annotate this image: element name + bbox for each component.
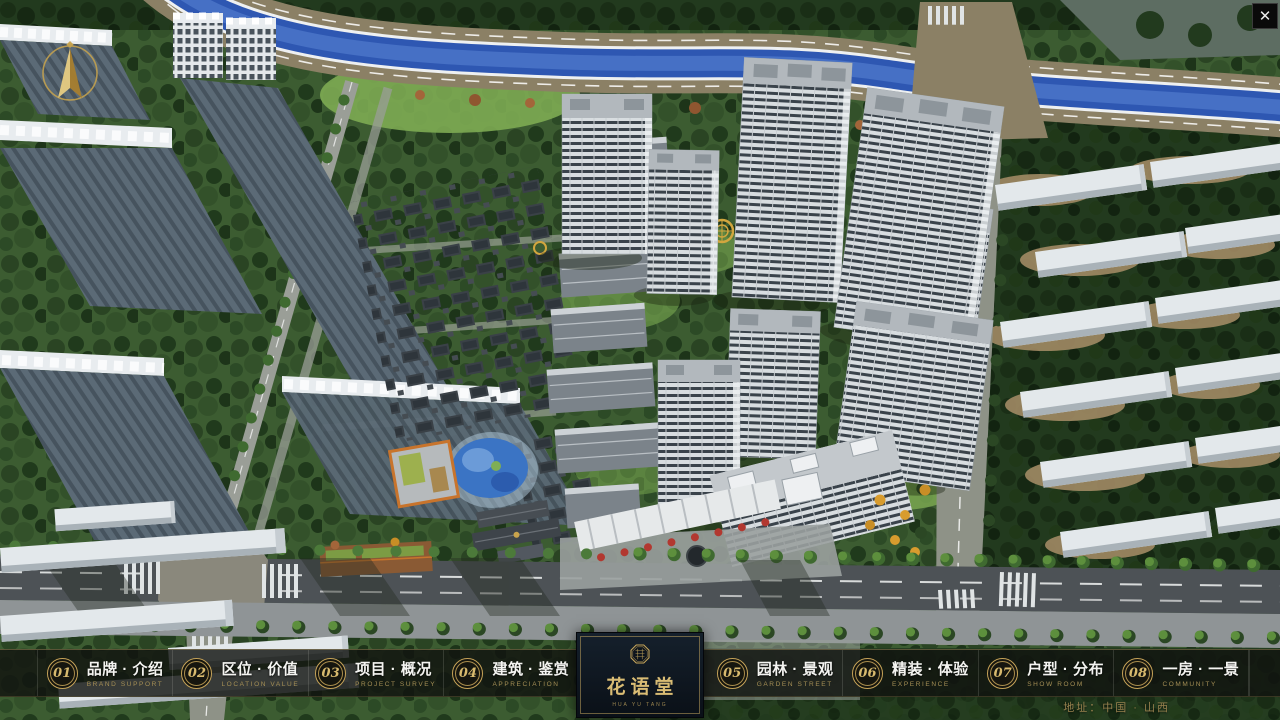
menu-item-views[interactable]: 08 一房 · 一景COMMUNITY [1114,650,1249,696]
number-badge-02: 02 [181,658,212,689]
item-number: 04 [459,667,477,680]
item-label-en: BRAND SUPPORT [87,681,164,688]
item-label-zh: 建筑 · 鉴赏 [492,658,569,679]
site-plan-render [0,0,1280,720]
menu-item-garden[interactable]: 05 园林 · 景观GARDEN STREET [708,650,843,696]
item-label-zh: 户型 · 分布 [1027,658,1104,679]
number-badge-01: 01 [47,658,78,689]
item-label-zh: 项目 · 概况 [355,658,432,679]
item-label-en: EXPERIENCE [892,681,950,688]
item-label-zh: 品牌 · 介绍 [87,658,164,679]
compass-north-icon [38,40,102,104]
menu-item-location[interactable]: 02 区位 · 价值LOCATION VALUE [173,650,308,696]
logo-caption: HUA YU TANG [612,702,667,708]
sales-presentation-screen: ✕ 01 品牌 · 介绍BRAND SUPPORT 02 区位 · 价值LOCA… [0,0,1280,720]
number-badge-06: 06 [852,658,883,689]
item-number: 02 [188,667,206,680]
number-badge-05: 05 [717,658,748,689]
number-badge-07: 07 [987,658,1018,689]
item-label-en: COMMUNITY [1162,681,1216,688]
address-text: 地址：中国 · 山西 [1063,699,1170,715]
item-label-en: PROJECT SURVEY [355,681,436,688]
item-number: 05 [723,667,741,680]
item-number: 01 [53,667,71,680]
item-number: 06 [858,667,876,680]
number-badge-03: 03 [315,658,346,689]
item-number: 03 [322,667,340,680]
number-badge-08: 08 [1122,658,1153,689]
item-number: 07 [994,667,1012,680]
item-number: 08 [1129,667,1147,680]
logo-panel[interactable]: 花语堂 HUA YU TANG [576,632,704,718]
item-label-en: APPRECIATION [492,681,559,688]
item-label-zh: 区位 · 价值 [221,658,298,679]
item-label-en: LOCATION VALUE [221,681,299,688]
number-badge-04: 04 [452,658,483,689]
close-icon: ✕ [1259,7,1272,25]
logo-title: 花语堂 [601,672,678,699]
close-button[interactable]: ✕ [1252,3,1278,29]
orange-building [390,441,459,507]
nav-right-spacer [1249,650,1280,696]
item-label-zh: 园林 · 景观 [757,658,834,679]
item-label-zh: 一房 · 一景 [1162,658,1239,679]
menu-item-architecture[interactable]: 04 建筑 · 鉴赏APPRECIATION [444,650,578,696]
menu-item-project[interactable]: 03 项目 · 概况PROJECT SURVEY [309,650,444,696]
menu-item-floorplans[interactable]: 07 户型 · 分布SHOW ROOM [979,650,1114,696]
item-label-en: SHOW ROOM [1027,681,1084,688]
item-label-zh: 精装 · 体验 [892,658,969,679]
menu-item-interior[interactable]: 06 精装 · 体验EXPERIENCE [843,650,978,696]
item-label-en: GARDEN STREET [757,681,833,688]
nav-left-spacer [0,650,38,696]
seal-icon [625,639,655,669]
menu-item-brand[interactable]: 01 品牌 · 介绍BRAND SUPPORT [38,650,173,696]
